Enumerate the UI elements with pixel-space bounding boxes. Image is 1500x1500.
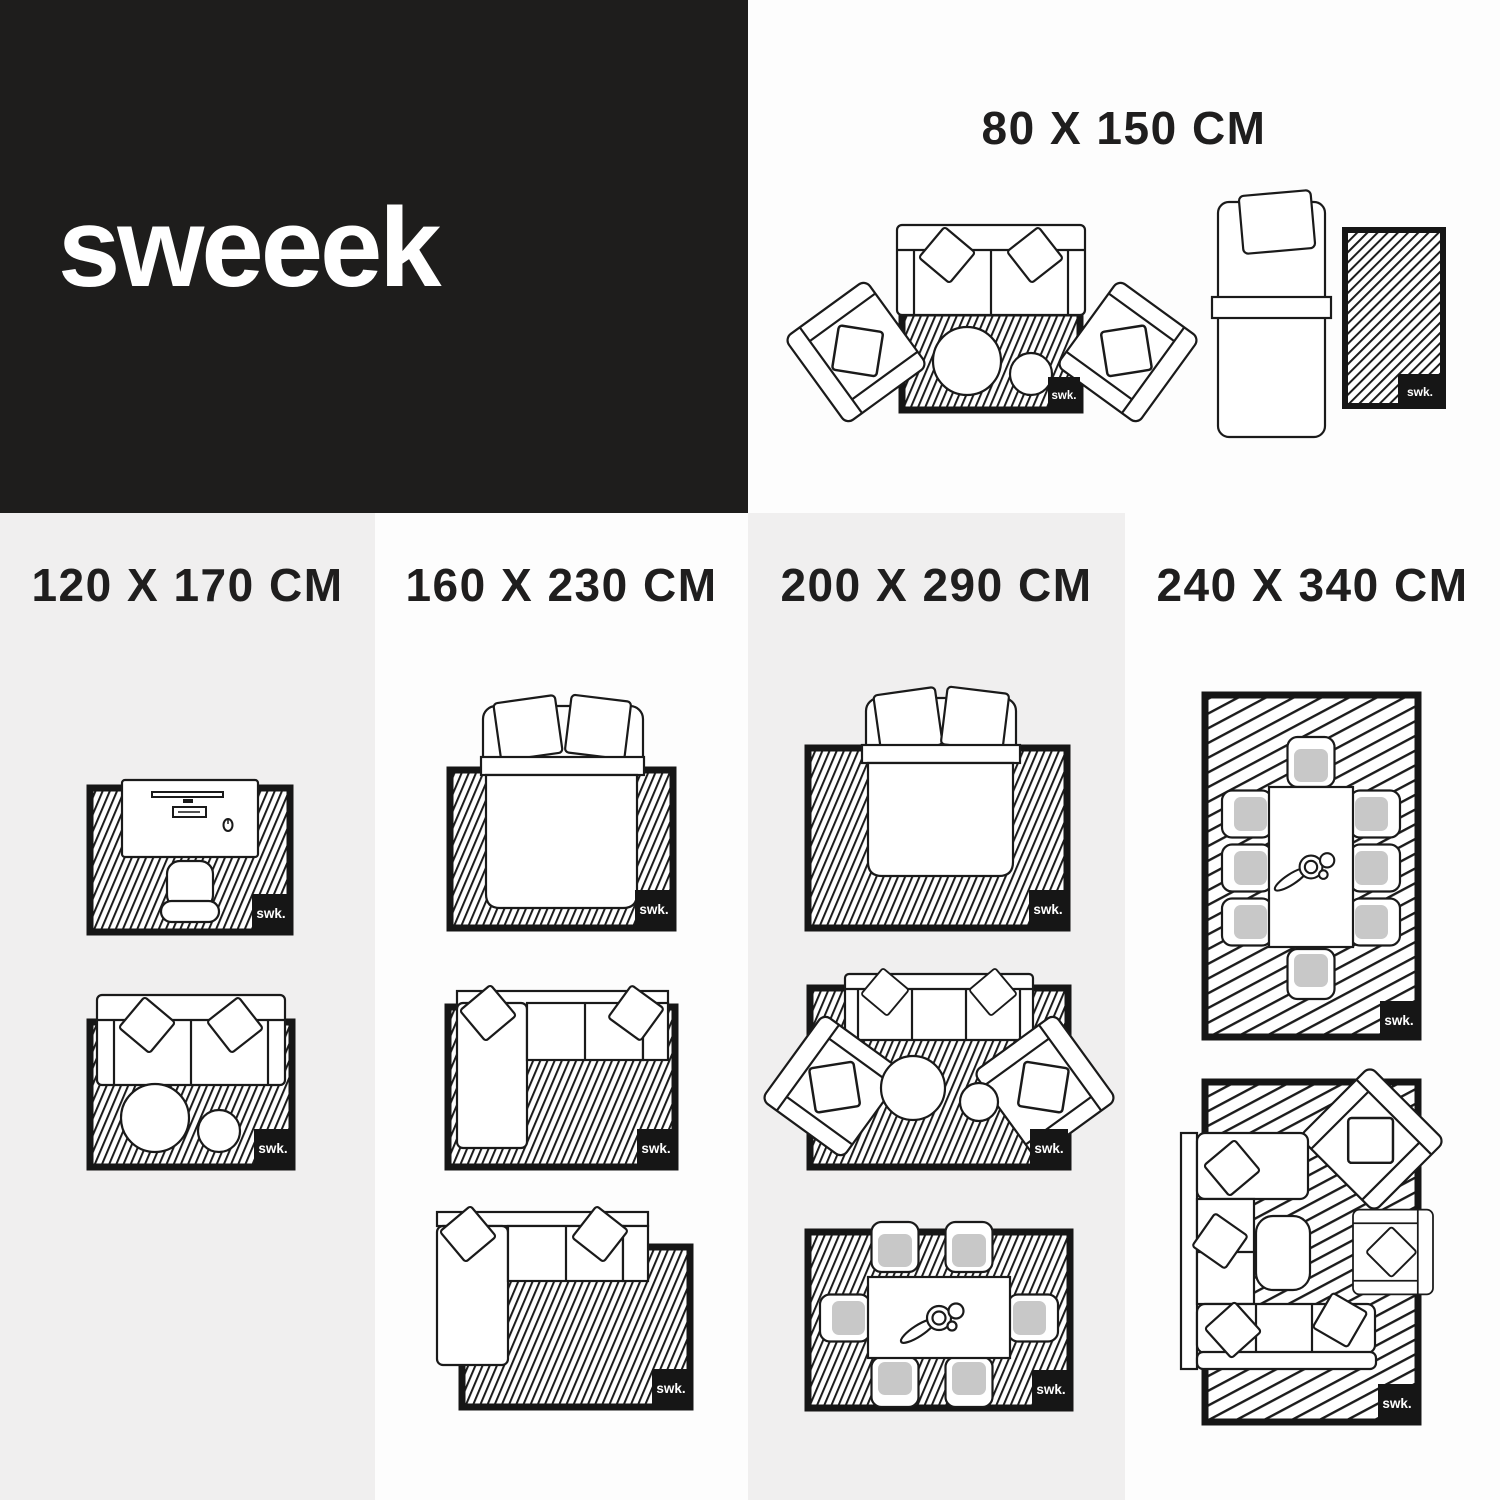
sofa xyxy=(97,995,285,1085)
svg-text:swk.: swk. xyxy=(656,1381,685,1396)
rug-brand-tag: swk. xyxy=(1380,1001,1418,1037)
coffee-table xyxy=(1256,1216,1310,1290)
coffee-table-large xyxy=(121,1084,189,1152)
coffee-table-large xyxy=(933,327,1001,395)
bed-pillow xyxy=(493,695,562,761)
svg-text:swk.: swk. xyxy=(1036,1382,1065,1397)
rug-brand-tag: swk. xyxy=(1048,377,1080,409)
size-heading: 240 X 340 CM xyxy=(1125,560,1500,610)
diagram-desk-chair-120x170: swk. xyxy=(80,770,300,940)
coffee-table-small xyxy=(960,1083,998,1121)
diagram-double-bed-160x230: swk. xyxy=(440,690,690,940)
diagram-sofa-tables-120x170: swk. xyxy=(80,985,310,1180)
svg-text:swk.: swk. xyxy=(1034,1141,1063,1156)
size-heading: 200 X 290 CM xyxy=(748,560,1125,610)
rug-brand-tag: swk. xyxy=(252,894,290,932)
section-200x290: 200 X 290 CM swk. xyxy=(748,513,1125,1500)
svg-text:swk.: swk. xyxy=(1382,1396,1411,1411)
rug-brand-tag: swk. xyxy=(1029,890,1067,928)
svg-text:swk.: swk. xyxy=(1384,1013,1413,1028)
size-heading: 80 X 150 CM xyxy=(748,103,1500,153)
section-160x230: 160 X 230 CM swk. xyxy=(375,513,748,1500)
svg-text:swk.: swk. xyxy=(1407,385,1433,399)
double-bed xyxy=(862,745,1020,876)
rug-size-guide: sweeek 80 X 150 CM swk. xyxy=(0,0,1500,1500)
section-240x340: 240 X 340 CM swk. xyxy=(1125,513,1500,1500)
diagram-corner-sofa-160x230: swk. xyxy=(440,985,690,1180)
section-80x150: 80 X 150 CM swk. xyxy=(748,0,1500,513)
rug-brand-tag: swk. xyxy=(635,890,673,928)
svg-text:swk.: swk. xyxy=(641,1141,670,1156)
size-heading: 160 X 230 CM xyxy=(375,560,748,610)
diagram-sofa-armchairs-200x290: swk. xyxy=(755,958,1125,1173)
brand-panel: sweeek xyxy=(0,0,748,513)
monitor xyxy=(152,792,223,797)
diagram-dining-six-200x290: swk. xyxy=(795,1215,1080,1420)
svg-text:swk.: swk. xyxy=(258,1141,287,1156)
rug-brand-tag: swk. xyxy=(1030,1129,1068,1167)
diagram-double-bed-200x290: swk. xyxy=(795,680,1080,940)
single-bed xyxy=(1212,190,1331,437)
diagram-corner-sofa-offset-160x230: swk. xyxy=(425,1200,700,1415)
armchair-right xyxy=(1353,1210,1433,1295)
size-heading: 120 X 170 CM xyxy=(0,560,375,610)
rug-brand-tag: swk. xyxy=(652,1369,690,1407)
coffee-table-small xyxy=(1010,353,1052,395)
svg-text:swk.: swk. xyxy=(639,902,668,917)
rug-brand-tag: swk. xyxy=(1398,374,1443,405)
coffee-table-small xyxy=(198,1110,240,1152)
coffee-table-large xyxy=(881,1056,945,1120)
double-bed xyxy=(481,757,644,908)
rug-brand-tag: swk. xyxy=(254,1129,292,1167)
section-120x170: 120 X 170 CM swk. xyxy=(0,513,375,1500)
diagram-sofa-armchairs-rug-80x150: swk. xyxy=(770,190,1210,465)
desk xyxy=(122,780,258,857)
bed-pillow xyxy=(565,695,632,760)
rug-brand-tag: swk. xyxy=(1378,1384,1416,1420)
brand-logo: sweeek xyxy=(58,192,439,304)
bed-pillow xyxy=(941,686,1010,751)
rug-brand-tag: swk. xyxy=(637,1129,675,1167)
diagram-single-bed-runner-80x150: swk. xyxy=(1195,180,1455,450)
bed-blanket-fold xyxy=(1212,297,1331,318)
diagram-large-living-set-240x340: swk. xyxy=(1170,1075,1450,1435)
svg-text:swk.: swk. xyxy=(1033,902,1062,917)
svg-text:swk.: swk. xyxy=(1052,390,1077,402)
office-chair xyxy=(161,861,219,922)
monitor-stand xyxy=(183,799,193,803)
sofa xyxy=(897,225,1085,315)
sofa xyxy=(845,968,1033,1040)
bed-pillow xyxy=(873,687,942,753)
diagram-dining-eight-240x340: swk. xyxy=(1195,685,1430,1050)
svg-text:swk.: swk. xyxy=(256,906,285,921)
rug-brand-tag: swk. xyxy=(1032,1370,1070,1408)
bed-pillow xyxy=(1239,190,1316,254)
